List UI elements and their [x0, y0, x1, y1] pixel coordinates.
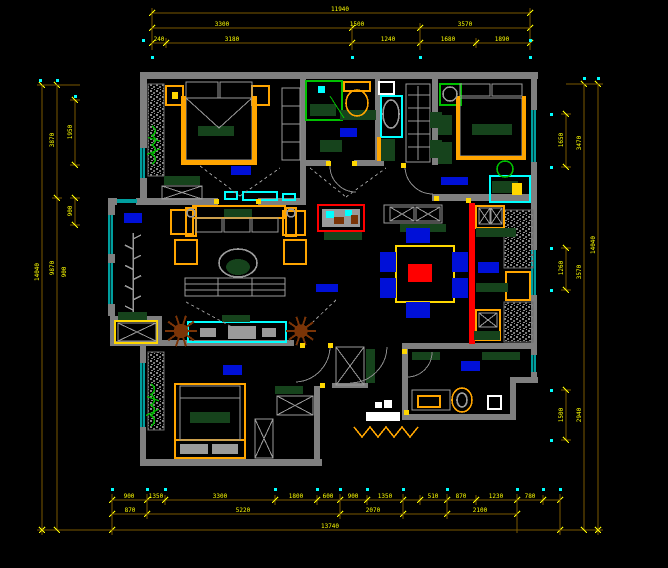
furniture-fill — [452, 252, 468, 272]
dimension-text: 870 — [456, 493, 467, 500]
wall-segment — [314, 386, 320, 463]
floor-plan: 1194033001500357024031801240168018909001… — [0, 0, 668, 568]
furniture-fill — [181, 96, 186, 162]
dimension-text: 2070 — [366, 507, 381, 514]
door-hinge — [352, 161, 357, 166]
furniture-fill — [476, 228, 516, 237]
reference-dot — [74, 95, 77, 98]
furniture-fill — [472, 124, 512, 135]
dimension-text: 3470 — [576, 135, 583, 150]
bay-window-label — [124, 213, 142, 223]
wall-segment — [140, 72, 538, 79]
wall-segment — [258, 198, 306, 205]
dimension-text: 870 — [125, 507, 136, 514]
dimension-text: 2940 — [576, 407, 583, 422]
furniture-fill — [262, 328, 276, 337]
reference-dot — [366, 488, 369, 491]
dimension-text: 1240 — [381, 36, 396, 43]
dimension-text: 1950 — [67, 124, 74, 139]
fixture — [226, 259, 250, 275]
reference-dot — [146, 488, 149, 491]
reference-dot — [164, 488, 167, 491]
reference-dot — [583, 77, 586, 80]
furniture-fill — [324, 232, 362, 240]
furniture-fill — [406, 228, 430, 243]
reference-dot — [550, 113, 553, 116]
wall-segment — [531, 349, 537, 355]
furniture-fill — [351, 215, 358, 224]
furniture-fill — [406, 302, 430, 318]
furniture-fill — [476, 283, 508, 292]
dimension-text: 3870 — [49, 132, 56, 147]
reference-dot — [550, 439, 553, 442]
door-hinge — [466, 198, 471, 203]
bathroom2-label — [461, 361, 480, 371]
living-room-label — [316, 284, 338, 292]
reference-dot — [550, 389, 553, 392]
dimension-text: 1500 — [558, 407, 565, 422]
wall-segment — [108, 205, 115, 215]
dimension-text: 14040 — [34, 263, 41, 281]
furniture-fill — [252, 96, 257, 162]
furniture-fill — [181, 160, 257, 165]
furniture-fill — [334, 217, 344, 224]
dimension-text: 3570 — [576, 264, 583, 279]
furniture-fill — [345, 210, 352, 216]
bedroom3-label — [223, 365, 242, 375]
bedroom2-label — [441, 177, 468, 185]
wall-segment — [531, 79, 537, 110]
reference-dot — [142, 39, 145, 42]
door-hinge — [328, 343, 333, 348]
furniture-fill — [384, 400, 392, 408]
reference-dot — [550, 289, 553, 292]
door-hinge — [256, 199, 261, 204]
furniture-fill — [118, 312, 147, 320]
furniture-fill — [377, 137, 381, 161]
wall-segment — [402, 414, 516, 420]
reference-dot — [351, 56, 354, 59]
furniture-fill — [366, 349, 375, 383]
kitchen-label — [478, 262, 499, 273]
dimension-text: 1350 — [378, 493, 393, 500]
dimension-text: 1260 — [558, 260, 565, 275]
bathroom1-label — [340, 128, 357, 137]
furniture-fill — [190, 412, 230, 423]
dimension-text: 900 — [67, 205, 74, 216]
furniture-fill — [456, 156, 526, 160]
dimension-text: 3300 — [215, 21, 230, 28]
reference-dot — [419, 56, 422, 59]
door-hinge — [404, 410, 409, 415]
dimension-text: 3570 — [458, 21, 473, 28]
reference-dot — [516, 488, 519, 491]
dimension-text: 510 — [428, 493, 439, 500]
furniture-fill — [452, 278, 468, 298]
wall-segment — [510, 379, 516, 415]
furniture-fill — [438, 115, 452, 135]
wall-segment — [140, 427, 146, 461]
reference-dot — [559, 488, 562, 491]
dimension-text: 2100 — [473, 507, 488, 514]
furniture-fill — [172, 92, 178, 99]
dimension-text: 780 — [525, 493, 536, 500]
dimension-text: 14040 — [590, 236, 597, 254]
furniture-fill — [180, 444, 208, 454]
furniture-fill — [438, 142, 452, 164]
wall-segment — [402, 349, 408, 415]
furniture-fill — [275, 386, 303, 394]
furniture-fill — [522, 96, 526, 158]
door-hinge — [300, 343, 305, 348]
floor-plan-svg: 1194033001500357024031801240168018909001… — [0, 0, 668, 568]
furniture-fill — [200, 328, 216, 337]
plant-core — [294, 324, 308, 338]
furniture-fill — [320, 140, 342, 152]
wall-segment — [108, 254, 115, 263]
dimension-text: 1800 — [289, 493, 304, 500]
dimension-text: 1350 — [149, 493, 164, 500]
dimension-text: 3300 — [213, 493, 228, 500]
door-hinge — [402, 349, 407, 354]
furniture-fill — [380, 252, 396, 272]
furniture-fill — [366, 412, 400, 421]
furniture-fill — [380, 278, 396, 298]
reference-dot — [597, 77, 600, 80]
dimension-text: 600 — [323, 493, 334, 500]
corridor-label — [231, 166, 251, 175]
wall-segment — [432, 194, 537, 201]
furniture-fill — [318, 86, 325, 93]
furniture-fill — [228, 326, 256, 339]
door-hinge — [401, 163, 406, 168]
dimension-text: 900 — [124, 493, 135, 500]
furniture-fill — [164, 176, 200, 185]
reference-dot — [151, 56, 154, 59]
furniture-fill — [456, 96, 460, 158]
reference-dot — [39, 79, 42, 82]
wall-segment — [531, 372, 537, 379]
reference-dot — [446, 488, 449, 491]
wall-segment — [140, 459, 322, 466]
wall-segment — [136, 198, 147, 205]
dimension-text: 900 — [61, 266, 68, 277]
reference-dot — [316, 488, 319, 491]
dimension-text: 900 — [348, 493, 359, 500]
wall-segment — [162, 340, 294, 346]
dimension-text: 3180 — [225, 36, 240, 43]
reference-dot — [339, 488, 342, 491]
furniture-fill — [381, 139, 395, 161]
dimension-text: 1230 — [489, 493, 504, 500]
dimension-text: 1500 — [350, 21, 365, 28]
furniture-fill — [474, 331, 500, 340]
dimension-text: 1890 — [495, 36, 510, 43]
furniture-fill — [310, 104, 336, 116]
dimension-text: 13740 — [321, 523, 339, 530]
furniture-fill — [408, 264, 432, 282]
dimension-text: 5220 — [236, 507, 251, 514]
dimension-text: 11940 — [331, 6, 349, 13]
dimension-text: 240 — [154, 36, 165, 43]
feature-wall — [469, 203, 475, 344]
furniture-fill — [222, 315, 250, 322]
furniture-fill — [198, 126, 234, 136]
wall-segment — [140, 346, 146, 363]
plant-core — [174, 324, 188, 338]
door-hinge — [214, 199, 219, 204]
furniture-fill — [326, 211, 334, 218]
wall-segment — [140, 79, 147, 148]
reference-dot — [402, 488, 405, 491]
door-hinge — [434, 196, 439, 201]
wall-segment — [300, 160, 330, 166]
reference-dot — [111, 488, 114, 491]
reference-dot — [529, 56, 532, 59]
door-hinge — [320, 383, 325, 388]
furniture-fill — [512, 183, 522, 195]
furniture-fill — [482, 352, 520, 360]
reference-dot — [550, 166, 553, 169]
furniture-fill — [375, 402, 382, 408]
dimension-text: 1650 — [558, 132, 565, 147]
hatch-wall — [504, 210, 533, 268]
furniture-fill — [412, 352, 440, 360]
furniture-fill — [224, 209, 252, 217]
dimension-text: 1680 — [441, 36, 456, 43]
dimension-text: 9870 — [49, 260, 56, 275]
furniture-fill — [212, 444, 238, 454]
wall-segment — [108, 304, 115, 316]
hatch-wall — [148, 352, 164, 430]
reference-dot — [550, 247, 553, 250]
hatch-wall — [504, 302, 533, 342]
door-hinge — [326, 161, 331, 166]
reference-dot — [542, 488, 545, 491]
reference-dot — [529, 39, 532, 42]
reference-dot — [56, 79, 59, 82]
reference-dot — [274, 488, 277, 491]
wall-segment — [108, 198, 117, 205]
furniture-fill — [340, 110, 376, 120]
